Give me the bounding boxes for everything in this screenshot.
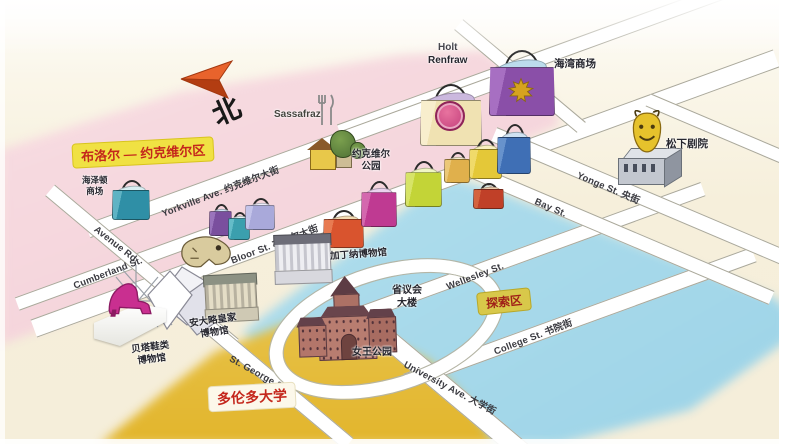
dinosaur-skull-icon	[178, 233, 234, 271]
maple-leaf-icon	[508, 77, 534, 103]
shopping-bag-icon	[112, 180, 148, 220]
theatre-label: 松下剧院	[666, 138, 708, 151]
sassafraz-label: Sassafraz	[274, 109, 321, 122]
bata-label: 贝塔鞋类博物馆	[131, 340, 172, 368]
shopping-bag-icon	[405, 161, 440, 207]
yorkville-park-label: 约克维尔公园	[352, 149, 390, 173]
toronto-tourist-map: Yorkville Ave. 约克维尔大街 Cumberland St. Ave…	[0, 0, 788, 444]
shopping-bag-icon	[245, 198, 273, 230]
hr-logo-icon	[435, 101, 465, 131]
uoft-label: 多伦多大学	[207, 382, 296, 413]
holt-renfrew-label: HoltRenfraw	[428, 42, 467, 67]
high-heel-shoe-icon	[104, 278, 154, 318]
shopping-bag-icon	[497, 124, 529, 174]
hazelton-label: 海泽顿商场	[82, 175, 108, 196]
the-bay-bag	[489, 50, 553, 116]
shopping-bag-icon	[444, 152, 468, 183]
shopping-bag-icon	[361, 181, 395, 227]
shopping-bag-icon	[473, 183, 502, 209]
shopping-bag-icon	[209, 204, 230, 236]
holt-renfrew-bag	[420, 84, 480, 146]
theatre-mask-icon	[629, 110, 665, 154]
legislature-label: 省议会大楼	[392, 285, 422, 310]
the-bay-label: 海湾商场	[554, 58, 596, 71]
queens-park-label: 女王公园	[352, 347, 392, 360]
shopping-bag-icon	[469, 139, 500, 179]
